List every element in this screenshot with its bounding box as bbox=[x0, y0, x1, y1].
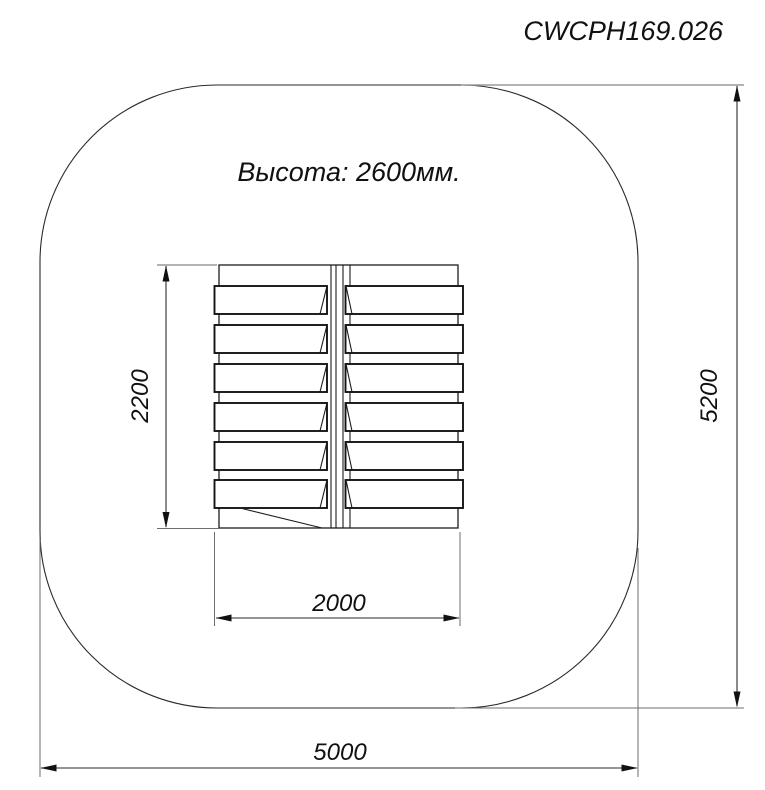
dimension-value: 5200 bbox=[696, 369, 723, 423]
slat bbox=[215, 286, 328, 314]
slat bbox=[346, 325, 464, 353]
dimension-zone-width: 5000 bbox=[40, 540, 638, 777]
arrowhead-up bbox=[163, 266, 170, 282]
dimension-value: 2000 bbox=[311, 590, 366, 617]
arrowhead-up bbox=[734, 86, 741, 102]
height-note-label: Высота: 2600мм. bbox=[237, 157, 460, 187]
slat bbox=[215, 325, 328, 353]
arrowhead-right bbox=[622, 765, 638, 772]
slat bbox=[346, 480, 464, 508]
technical-drawing-page: CWCPH169.026 Высота: 2600мм. bbox=[0, 0, 765, 790]
slat bbox=[346, 403, 464, 431]
dimension-value: 2200 bbox=[127, 369, 154, 424]
arrowhead-down bbox=[734, 692, 741, 708]
dimension-equipment-depth: 2200 bbox=[127, 265, 219, 529]
dimension-zone-depth: 5200 bbox=[455, 85, 744, 708]
drawing-code-label: CWCPH169.026 bbox=[523, 16, 724, 46]
arrowhead-right bbox=[444, 615, 460, 622]
equipment-top-view bbox=[215, 265, 464, 528]
dimension-value: 5000 bbox=[313, 739, 367, 766]
slat bbox=[215, 442, 328, 470]
arrowhead-left bbox=[216, 615, 232, 622]
slat bbox=[346, 442, 464, 470]
slat bbox=[346, 286, 464, 314]
slat bbox=[215, 403, 328, 431]
slat bbox=[346, 364, 464, 392]
arrowhead-left bbox=[41, 765, 57, 772]
plan-view-drawing: CWCPH169.026 Высота: 2600мм. bbox=[0, 0, 765, 790]
dimension-equipment-width: 2000 bbox=[215, 532, 461, 626]
slat bbox=[215, 480, 328, 508]
arrowhead-down bbox=[163, 512, 170, 528]
slat bbox=[215, 364, 328, 392]
